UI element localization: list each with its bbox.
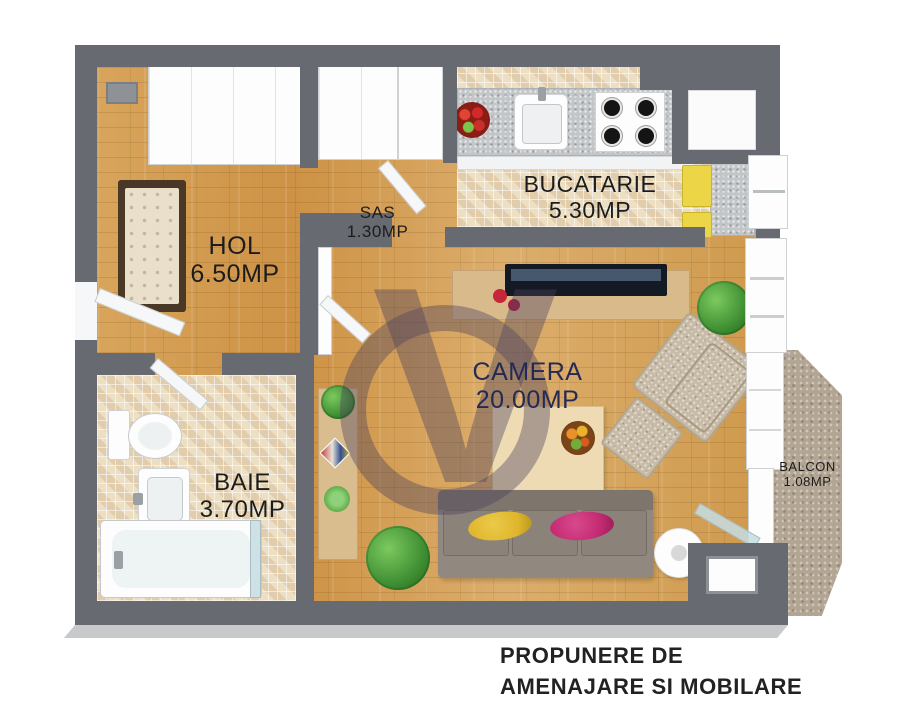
room-label-hol: HOL 6.50MP <box>160 232 310 288</box>
tv-decor-icon <box>493 289 507 303</box>
wall-hol-sas-pillar <box>300 63 318 168</box>
table-fruit-bowl-icon <box>561 421 595 455</box>
floor-plant-icon <box>366 526 430 590</box>
room-name: CAMERA <box>440 358 615 386</box>
sink-basin <box>522 104 562 144</box>
console-bowl-icon <box>324 486 350 512</box>
sas-alcove <box>398 65 443 160</box>
window-bar <box>750 315 784 318</box>
tv-decor-icon <box>508 299 520 311</box>
room-area: 6.50MP <box>160 260 310 288</box>
wall-bottom <box>75 601 715 625</box>
burner-icon <box>604 128 620 144</box>
sas-wardrobe <box>318 65 398 160</box>
room-area: 1.30MP <box>330 222 425 241</box>
bathtub-basin <box>112 530 250 588</box>
sink-faucet-icon <box>133 493 143 505</box>
wall-baie-top-left <box>97 353 155 375</box>
sink-faucet-icon <box>538 87 546 101</box>
side-table-lamp-icon <box>671 545 687 561</box>
wall-sas-kitchen <box>443 63 457 163</box>
toilet-seat <box>138 422 172 450</box>
wall-vent-icon <box>106 82 138 104</box>
room-area: 20.00MP <box>440 386 615 414</box>
room-area: 5.30MP <box>495 198 685 224</box>
window-bar <box>753 190 785 193</box>
plan-title-line1: PROPUNERE DE <box>500 640 890 671</box>
room-name: BAIE <box>175 470 310 497</box>
kitchen-sink <box>514 94 568 150</box>
room-area: 3.70MP <box>175 497 310 524</box>
wall-top-right-block <box>640 45 780 90</box>
bathtub <box>100 520 262 598</box>
room-name: BUCATARIE <box>495 172 685 198</box>
plan-title: PROPUNERE DE AMENAJARE SI MOBILARE <box>500 640 890 702</box>
shower-glass <box>250 520 261 598</box>
room-label-balcon: BALCON 1.08MP <box>765 460 850 489</box>
window-bar <box>750 277 784 280</box>
window-bottom-right <box>706 556 758 594</box>
room-label-sas: SAS 1.30MP <box>330 203 425 241</box>
room-name: BALCON <box>765 460 850 475</box>
fruit-bowl-icon <box>454 102 490 138</box>
room-name: SAS <box>330 203 425 222</box>
kitchen-stove <box>595 92 665 152</box>
balcony-door-unit <box>745 238 787 353</box>
bathtub-faucet-icon <box>114 551 123 569</box>
wall-kitchen-bottom <box>445 227 705 247</box>
burner-icon <box>604 100 620 116</box>
room-label-camera: CAMERA 20.00MP <box>440 358 615 414</box>
entrance-opening <box>75 282 97 340</box>
shaft-void <box>688 90 756 150</box>
room-label-baie: BAIE 3.70MP <box>175 470 310 524</box>
floor-plan-canvas: V HOL 6.50MP SAS 1.30MP BUCATARIE 5.30MP… <box>0 0 905 720</box>
sofa <box>438 490 653 578</box>
sofa-back <box>438 490 653 510</box>
bottom-bevel <box>64 625 788 638</box>
burner-icon <box>638 100 654 116</box>
room-label-bucatarie: BUCATARIE 5.30MP <box>495 172 685 224</box>
room-name: HOL <box>160 232 310 260</box>
kitchen-window-alcove <box>748 155 788 229</box>
kitchen-cabinet-front <box>457 156 695 170</box>
balcony-shelf-unit <box>746 350 784 470</box>
shelf-line <box>749 429 781 431</box>
toilet-bowl <box>128 413 182 459</box>
toilet-tank <box>108 410 130 460</box>
plan-title-line2: AMENAJARE SI MOBILARE <box>500 671 890 702</box>
shelf-line <box>749 389 781 391</box>
tv-screen <box>511 269 661 281</box>
hallway-wardrobe <box>148 65 308 165</box>
corner-plant-icon <box>697 281 751 335</box>
burner-icon <box>638 128 654 144</box>
dining-chair-yellow <box>682 165 712 207</box>
room-area: 1.08MP <box>765 475 850 490</box>
tv <box>505 264 667 296</box>
console-plant-icon <box>321 385 355 419</box>
